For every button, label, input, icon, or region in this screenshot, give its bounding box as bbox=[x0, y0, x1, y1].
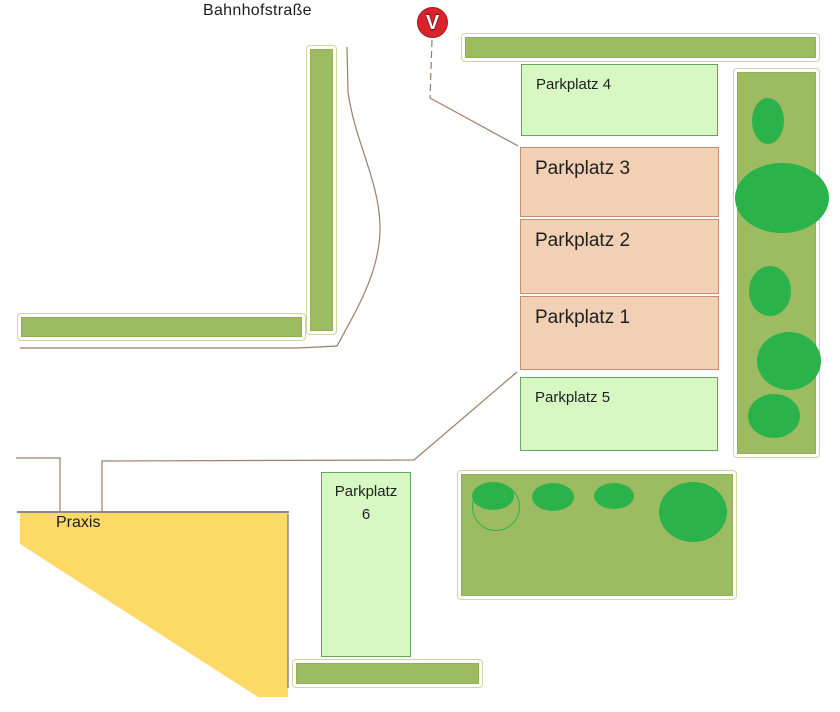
tree bbox=[757, 332, 821, 390]
parkplatz-3-zone: Parkplatz 3 bbox=[520, 147, 719, 217]
parkplatz-5-label: Parkplatz 5 bbox=[521, 378, 717, 406]
praxis-building bbox=[20, 513, 288, 697]
hedge-left-vertical bbox=[306, 45, 337, 335]
hedge-left-vertical-fill bbox=[310, 49, 333, 331]
location-marker-label: V bbox=[426, 13, 439, 33]
marker-path-solid bbox=[430, 98, 520, 147]
parkplatz-3-label: Parkplatz 3 bbox=[521, 148, 718, 180]
location-marker: V bbox=[417, 7, 448, 38]
tree bbox=[749, 266, 791, 316]
parkplatz-5-zone: Parkplatz 5 bbox=[520, 377, 718, 451]
hedge-bottom bbox=[292, 659, 483, 688]
tree bbox=[748, 394, 800, 438]
parkplatz-2-zone: Parkplatz 2 bbox=[520, 219, 719, 294]
tree bbox=[472, 482, 514, 510]
tree-strip-right bbox=[733, 68, 820, 458]
green-area-bottom-right bbox=[457, 470, 737, 600]
parkplatz-2-label: Parkplatz 2 bbox=[521, 220, 718, 252]
hedge-left-horizontal bbox=[17, 313, 306, 341]
hedge-top-fill bbox=[465, 37, 816, 58]
tree bbox=[594, 483, 634, 509]
parkplatz-4-label: Parkplatz 4 bbox=[522, 65, 717, 93]
hedge-left-horizontal-fill bbox=[21, 317, 302, 337]
driveway-line-left bbox=[16, 458, 60, 512]
praxis-label: Praxis bbox=[56, 514, 100, 532]
parkplatz-6-zone: Parkplatz 6 bbox=[321, 472, 411, 657]
driveway-line-right bbox=[102, 372, 517, 512]
parkplatz-4-zone: Parkplatz 4 bbox=[521, 64, 718, 136]
tree bbox=[752, 98, 784, 144]
street-name-label: Bahnhofstraße bbox=[203, 2, 312, 20]
tree bbox=[659, 482, 727, 542]
marker-path-dashed bbox=[430, 40, 432, 98]
hedge-bottom-fill bbox=[296, 663, 479, 684]
tree bbox=[735, 163, 829, 233]
parkplatz-1-label: Parkplatz 1 bbox=[521, 297, 718, 329]
site-plan: Bahnhofstraße Parkplatz 4 Parkplatz 3 Pa… bbox=[0, 0, 840, 712]
parkplatz-1-zone: Parkplatz 1 bbox=[520, 296, 719, 370]
parkplatz-6-label: Parkplatz 6 bbox=[332, 481, 400, 526]
hedge-top bbox=[461, 33, 820, 62]
tree bbox=[532, 483, 574, 511]
